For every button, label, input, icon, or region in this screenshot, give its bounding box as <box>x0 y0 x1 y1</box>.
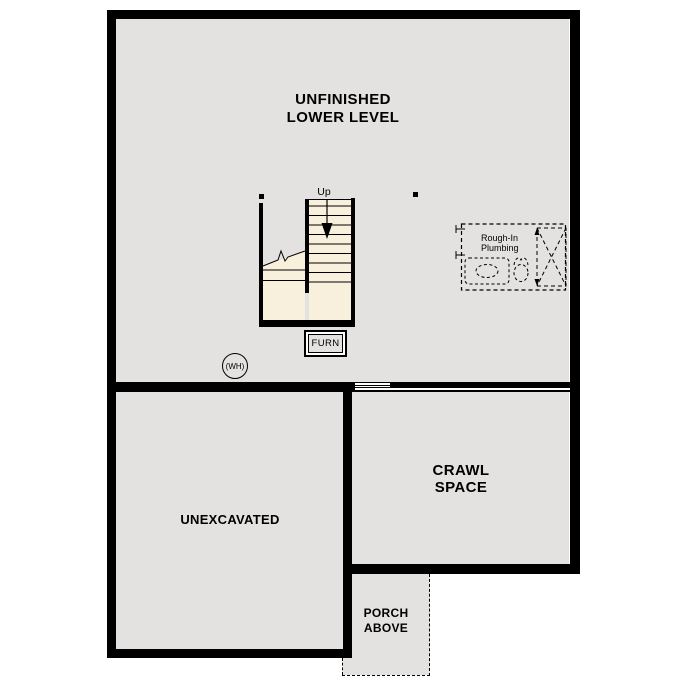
title-line1: UNFINISHED <box>287 91 400 109</box>
wall-unexcavated-bottom <box>107 649 352 658</box>
title-line2: LOWER LEVEL <box>287 109 400 127</box>
plumbing-label-line2: Plumbing <box>481 243 519 253</box>
wall-right <box>570 10 580 574</box>
crawl-line1: CRAWL <box>433 462 490 479</box>
stair-flight-wall <box>305 199 309 293</box>
furnace-label: FURN <box>308 334 343 353</box>
room-label-unexcavated: UNEXCAVATED <box>180 512 279 527</box>
sink-icon <box>465 258 509 284</box>
stair-wall-right <box>351 198 355 327</box>
water-heater-symbol: (WH) <box>222 353 248 379</box>
post-dot-right <box>413 192 418 197</box>
crawl-line2: SPACE <box>433 479 490 496</box>
toilet-icon <box>514 258 528 282</box>
furnace-box: FURN <box>304 330 347 357</box>
wall-left <box>107 10 116 658</box>
room-label-crawl-space: CRAWL SPACE <box>433 462 490 496</box>
stair-wall-bottom <box>259 320 355 327</box>
stair-flight-floor <box>309 199 351 320</box>
pipe-stub-icon <box>456 225 465 259</box>
floorplan: Up Rough-In Plumbing <box>0 0 687 687</box>
stair-wall-left <box>259 203 263 321</box>
porch-line2: ABOVE <box>364 621 409 636</box>
room-label-porch: PORCH ABOVE <box>364 606 409 636</box>
crawl-access-hatch <box>355 383 390 390</box>
tub-icon <box>535 228 567 286</box>
porch-dashed-bottom <box>342 675 430 676</box>
rough-in-plumbing: Rough-In Plumbing <box>455 218 570 296</box>
wall-middle <box>107 382 580 392</box>
wall-crawl-bottom <box>343 564 580 574</box>
wall-seam <box>390 388 570 390</box>
wall-divider <box>343 392 352 658</box>
porch-dashed-left <box>342 658 343 675</box>
stairs-up-label: Up <box>317 186 330 198</box>
hatch-line <box>355 385 390 386</box>
staircase <box>255 183 360 330</box>
hatch-line <box>355 387 390 388</box>
stair-winder-floor <box>263 251 305 320</box>
wall-top <box>107 10 580 19</box>
porch-dashed-right <box>429 574 430 676</box>
porch-line1: PORCH <box>364 606 409 621</box>
page-title: UNFINISHED LOWER LEVEL <box>287 91 400 127</box>
plumbing-label-line1: Rough-In <box>481 233 518 243</box>
